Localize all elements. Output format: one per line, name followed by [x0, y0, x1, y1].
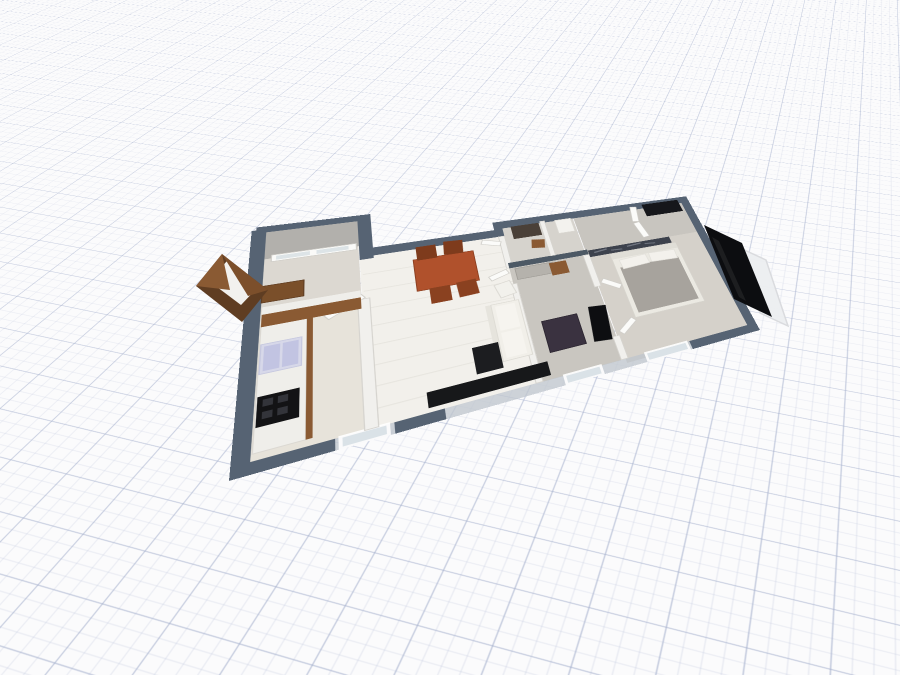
floorplan-3d-viewport[interactable] [0, 0, 900, 675]
tall-furniture-layer [0, 0, 900, 675]
